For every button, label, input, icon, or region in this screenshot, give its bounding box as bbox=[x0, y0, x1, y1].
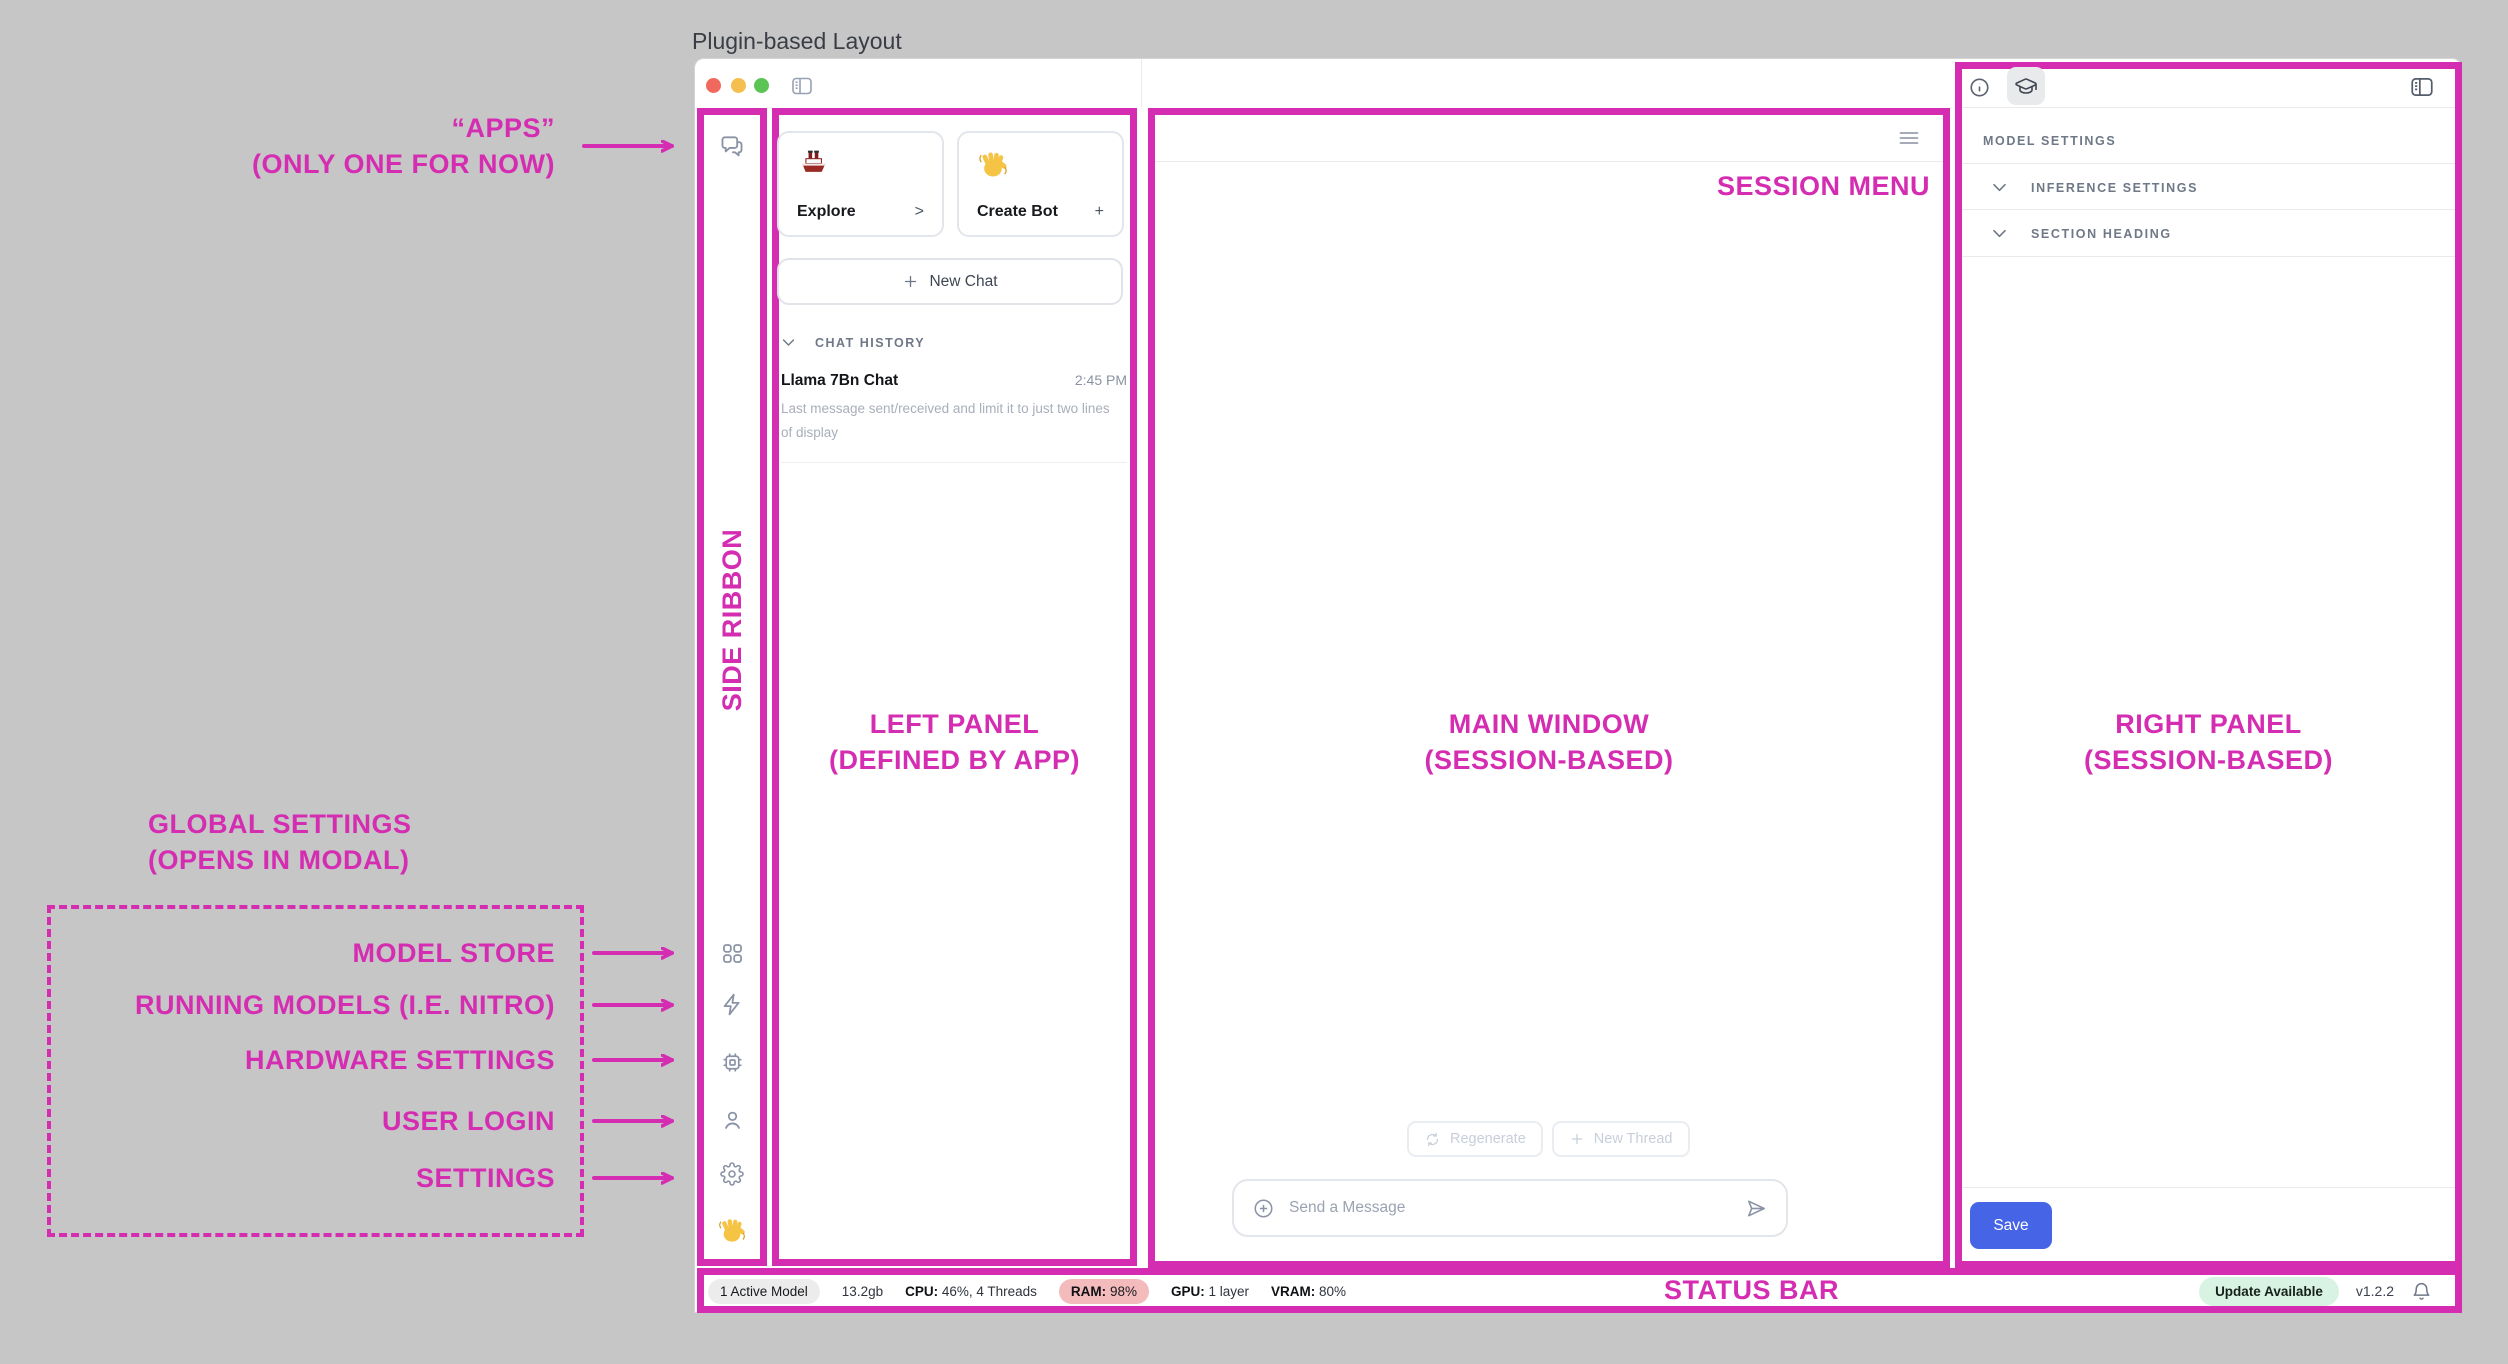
apps-annotation: “APPS” (ONLY ONE FOR NOW) bbox=[100, 110, 555, 182]
create-bot-card-action: + bbox=[1095, 203, 1104, 221]
status-bar-stats: 1 Active Model 13.2gb CPU: 46%, 4 Thread… bbox=[708, 1275, 1346, 1307]
settings-gear-icon[interactable] bbox=[719, 1161, 745, 1187]
model-settings-tab[interactable] bbox=[2007, 67, 2045, 105]
active-model-badge: 1 Active Model bbox=[708, 1279, 820, 1304]
status-bar-right: Update Available v1.2.2 bbox=[2199, 1274, 2432, 1308]
gpu-stat: GPU: 1 layer bbox=[1171, 1284, 1249, 1299]
session-menu-annotation: SESSION MENU bbox=[1530, 168, 1930, 204]
right-header-divider bbox=[1962, 107, 2455, 108]
regenerate-button[interactable]: Regenerate bbox=[1407, 1121, 1543, 1157]
send-icon[interactable] bbox=[1745, 1197, 1768, 1220]
regenerate-label: Regenerate bbox=[1450, 1131, 1526, 1147]
inference-settings-row[interactable]: INFERENCE SETTINGS bbox=[1990, 178, 2198, 197]
thread-actions: Regenerate New Thread bbox=[1407, 1121, 1690, 1157]
section-heading-row[interactable]: SECTION HEADING bbox=[1990, 224, 2172, 243]
settings-annotation: SETTINGS bbox=[47, 1160, 555, 1196]
new-chat-button[interactable]: New Chat bbox=[777, 258, 1123, 305]
session-menu-icon[interactable] bbox=[1894, 126, 1924, 150]
save-area-divider bbox=[1962, 1187, 2455, 1188]
running-models-annotation: RUNNING MODELS (I.E. NITRO) bbox=[47, 987, 555, 1023]
wave-app-icon[interactable] bbox=[716, 1214, 748, 1246]
design-canvas: Plugin-based Layout SIDE RIBBON Explore>… bbox=[0, 0, 2508, 1364]
chevron-down-icon bbox=[1990, 178, 2009, 197]
new-chat-label: New Chat bbox=[929, 273, 997, 291]
ship-emoji-icon bbox=[797, 148, 829, 180]
section-divider bbox=[1962, 163, 2455, 164]
right-panel-annotation: RIGHT PANEL (SESSION-BASED) bbox=[1962, 706, 2455, 778]
sidebar-toggle-icon[interactable] bbox=[789, 74, 815, 98]
inference-settings-label: INFERENCE SETTINGS bbox=[2031, 181, 2198, 195]
chat-app-icon[interactable] bbox=[718, 132, 746, 160]
message-composer bbox=[1232, 1179, 1788, 1237]
side-ribbon-annotation: SIDE RIBBON bbox=[714, 480, 750, 760]
status-bar-annotation: STATUS BAR bbox=[1664, 1272, 1839, 1308]
user-login-icon[interactable] bbox=[719, 1107, 745, 1133]
running-models-icon[interactable] bbox=[719, 991, 745, 1017]
chat-item-preview: Last message sent/received and limit it … bbox=[781, 397, 1115, 444]
chat-history-header[interactable]: CHAT HISTORY bbox=[780, 334, 925, 351]
message-input[interactable] bbox=[1289, 1199, 1731, 1217]
graduation-cap-icon bbox=[2014, 74, 2038, 98]
model-settings-heading: MODEL SETTINGS bbox=[1983, 134, 2116, 148]
page-title: Plugin-based Layout bbox=[692, 28, 902, 55]
model-store-annotation: MODEL STORE bbox=[47, 935, 555, 971]
explore-card[interactable]: Explore> bbox=[777, 131, 944, 237]
model-store-icon[interactable] bbox=[719, 940, 745, 966]
attach-plus-icon[interactable] bbox=[1252, 1197, 1275, 1220]
hardware-settings-annotation: HARDWARE SETTINGS bbox=[47, 1042, 555, 1078]
explore-card-label: Explore bbox=[797, 203, 856, 221]
cpu-stat: CPU: 46%, 4 Threads bbox=[905, 1284, 1037, 1299]
section-divider bbox=[1962, 209, 2455, 210]
wave-emoji-icon bbox=[977, 148, 1009, 180]
main-window-annotation: MAIN WINDOW (SESSION-BASED) bbox=[1154, 706, 1944, 778]
plus-icon bbox=[902, 273, 919, 290]
user-login-annotation: USER LOGIN bbox=[47, 1103, 555, 1139]
save-button[interactable]: Save bbox=[1970, 1202, 2052, 1249]
main-header-divider bbox=[1155, 161, 1943, 162]
vram-stat: VRAM: 80% bbox=[1271, 1284, 1346, 1299]
section-divider bbox=[1962, 256, 2455, 257]
new-thread-label: New Thread bbox=[1594, 1131, 1673, 1147]
close-window-button[interactable] bbox=[706, 78, 721, 93]
ram-badge: RAM: 98% bbox=[1059, 1279, 1149, 1304]
refresh-icon bbox=[1424, 1131, 1441, 1148]
info-tab-icon[interactable] bbox=[1967, 75, 1991, 99]
minimize-window-button[interactable] bbox=[731, 78, 746, 93]
chat-list-item[interactable]: Llama 7Bn Chat 2:45 PM Last message sent… bbox=[781, 372, 1127, 463]
maximize-window-button[interactable] bbox=[754, 78, 769, 93]
create-bot-card[interactable]: Create Bot+ bbox=[957, 131, 1124, 237]
titlebar-divider bbox=[1141, 59, 1142, 107]
memory-usage: 13.2gb bbox=[842, 1284, 883, 1299]
new-thread-button[interactable]: New Thread bbox=[1552, 1121, 1690, 1157]
plus-icon bbox=[1569, 1131, 1585, 1147]
chevron-down-icon bbox=[1990, 224, 2009, 243]
chat-history-label: CHAT HISTORY bbox=[815, 336, 925, 350]
hardware-settings-icon[interactable] bbox=[719, 1049, 745, 1075]
chevron-down-icon bbox=[780, 334, 797, 351]
left-panel-annotation: LEFT PANEL (DEFINED BY APP) bbox=[772, 706, 1137, 778]
section-heading-label: SECTION HEADING bbox=[2031, 227, 2172, 241]
explore-card-action: > bbox=[915, 203, 924, 221]
bell-icon[interactable] bbox=[2411, 1281, 2432, 1302]
app-version: v1.2.2 bbox=[2356, 1283, 2394, 1299]
update-available-badge[interactable]: Update Available bbox=[2199, 1277, 2339, 1306]
chat-item-title: Llama 7Bn Chat bbox=[781, 372, 898, 390]
global-settings-annotation: GLOBAL SETTINGS (OPENS IN MODAL) bbox=[148, 806, 412, 878]
chat-item-time: 2:45 PM bbox=[1075, 372, 1127, 388]
main-window-panel bbox=[1148, 108, 1950, 1268]
create-bot-card-label: Create Bot bbox=[977, 203, 1058, 221]
right-panel-toggle-icon[interactable] bbox=[2408, 74, 2436, 100]
